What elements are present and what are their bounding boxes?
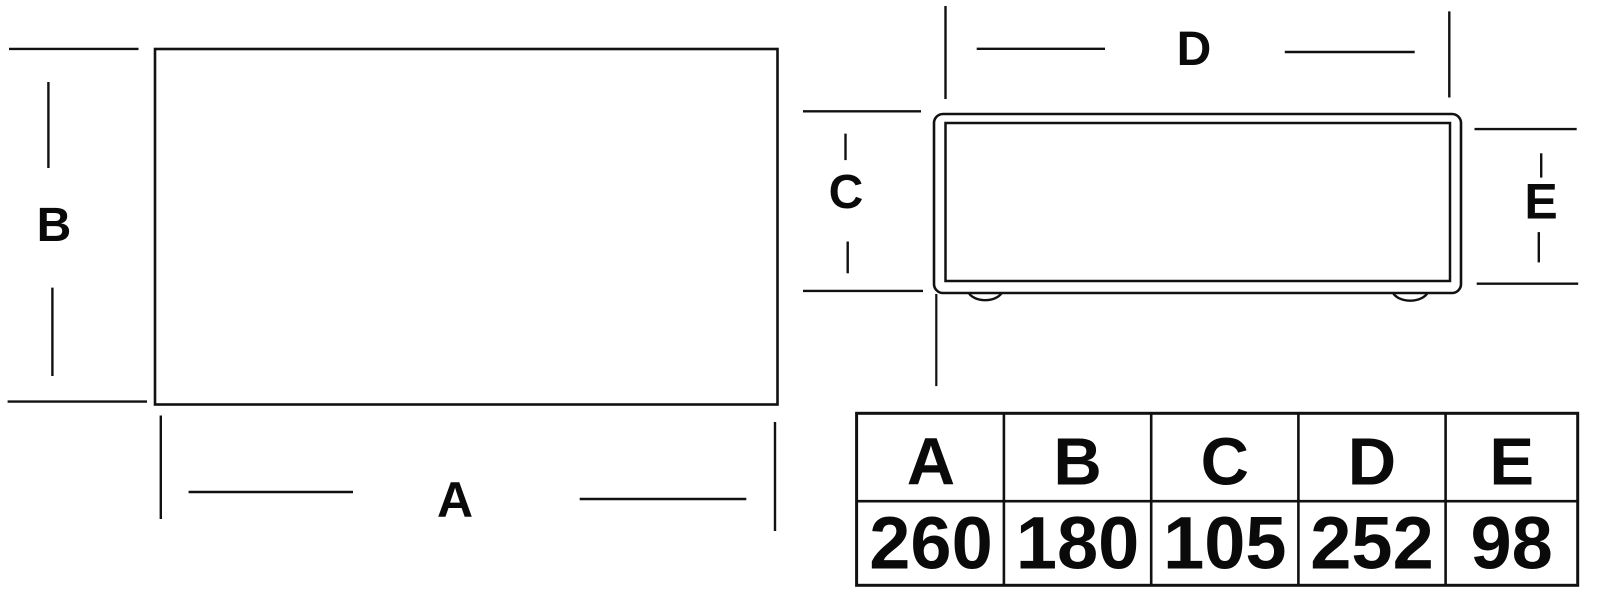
svg-text:C: C <box>1201 425 1249 500</box>
svg-text:C: C <box>829 166 864 219</box>
svg-text:D: D <box>1348 425 1396 500</box>
svg-text:A: A <box>437 472 473 528</box>
svg-text:B: B <box>37 199 72 252</box>
svg-text:D: D <box>1177 23 1212 76</box>
svg-text:A: A <box>907 425 955 500</box>
svg-text:B: B <box>1053 425 1101 500</box>
svg-text:E: E <box>1489 425 1534 500</box>
svg-text:98: 98 <box>1471 501 1553 584</box>
svg-text:E: E <box>1524 174 1557 230</box>
svg-text:252: 252 <box>1310 501 1433 584</box>
svg-text:105: 105 <box>1163 501 1286 584</box>
svg-text:180: 180 <box>1016 501 1139 584</box>
svg-text:260: 260 <box>869 501 992 584</box>
